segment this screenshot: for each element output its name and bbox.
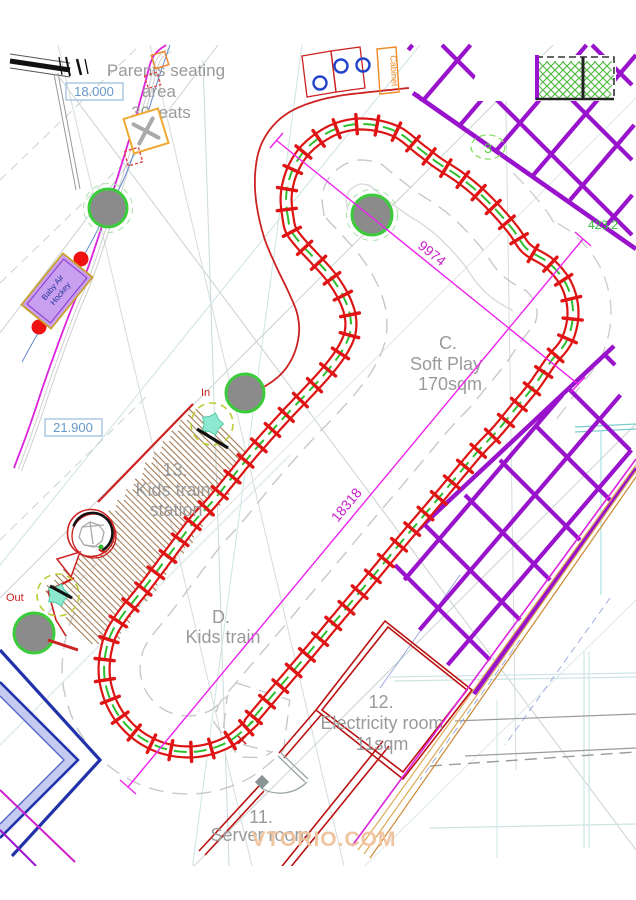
svg-text:Soft Play: Soft Play [410, 354, 482, 374]
svg-text:In: In [201, 387, 210, 399]
svg-text:D.: D. [212, 607, 230, 627]
svg-text:station: station [149, 500, 202, 520]
svg-text:21.900: 21.900 [53, 420, 93, 435]
svg-text:13.: 13. [162, 460, 187, 480]
svg-text:VTORIO.COM: VTORIO.COM [252, 828, 397, 851]
svg-text:Kids train: Kids train [135, 480, 210, 500]
svg-text:Kids train: Kids train [185, 627, 260, 647]
svg-text:423.2: 423.2 [588, 218, 618, 232]
svg-text:12.: 12. [368, 692, 393, 712]
svg-text:Cabinet: Cabinet [388, 55, 400, 87]
svg-text:170sqm: 170sqm [418, 374, 482, 394]
svg-text:18.000: 18.000 [74, 84, 114, 99]
svg-text:Parents seating: Parents seating [107, 61, 225, 80]
svg-text:C.: C. [439, 333, 457, 353]
svg-text:11.: 11. [249, 807, 273, 827]
svg-text:11sqm: 11sqm [356, 734, 409, 754]
svg-text:Electricity room: Electricity room [320, 713, 443, 733]
svg-text:Out: Out [6, 592, 24, 604]
svg-text:3: 3 [484, 140, 492, 156]
